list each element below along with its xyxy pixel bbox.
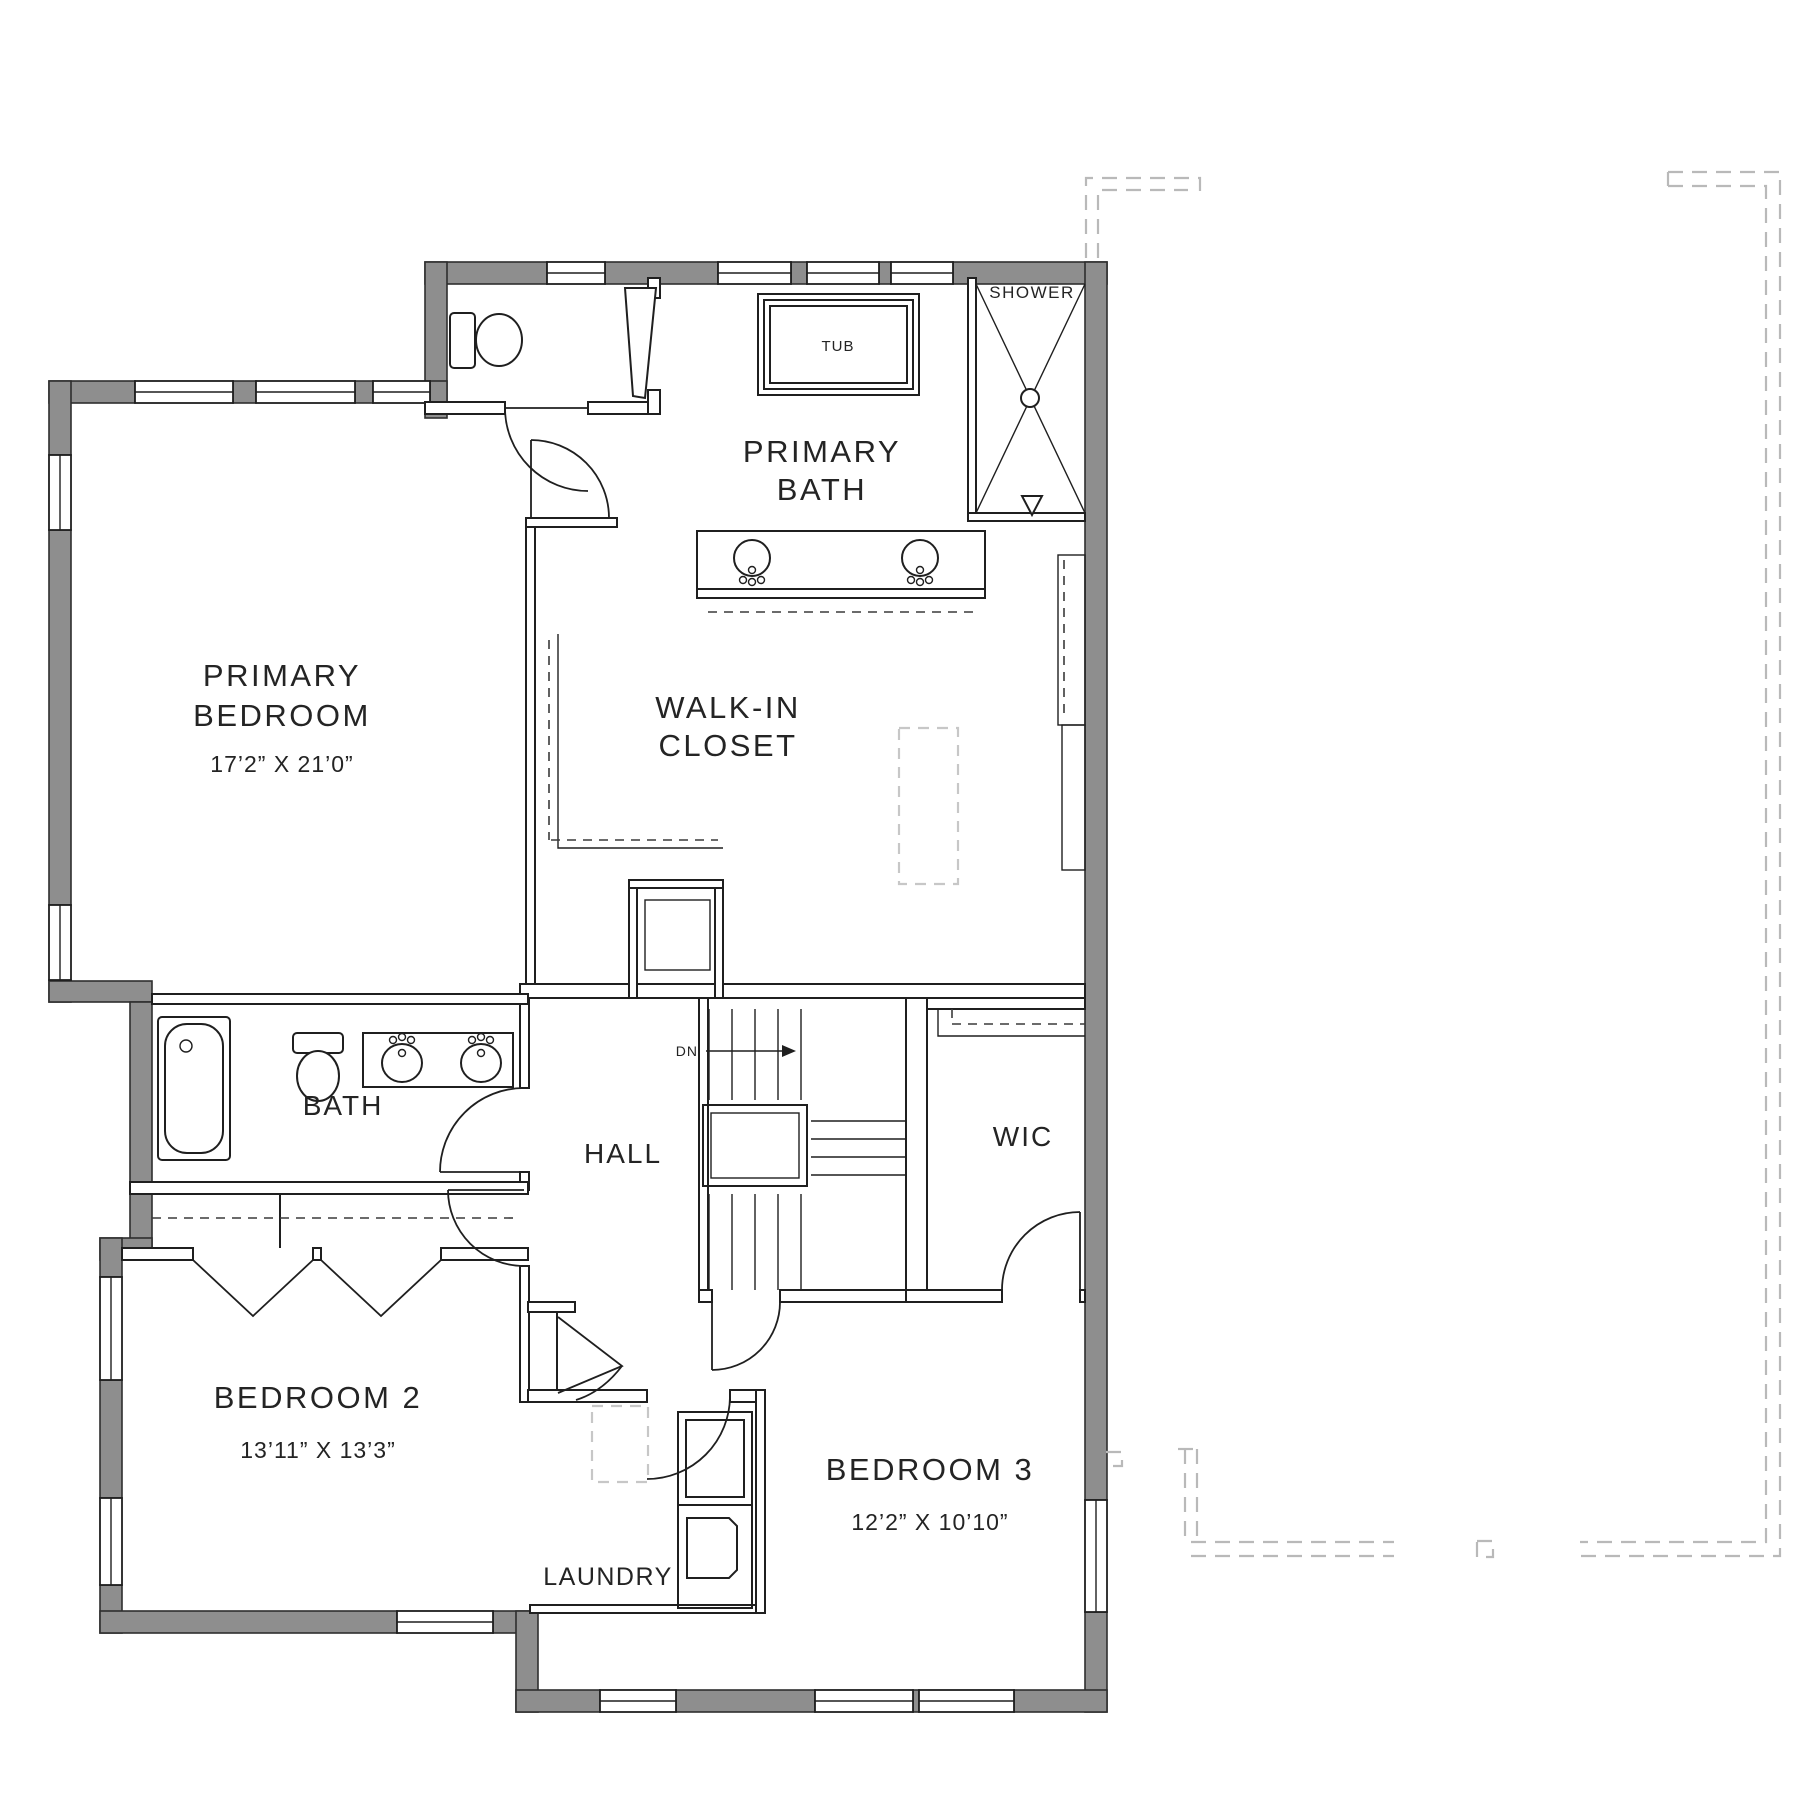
bath-door	[440, 1088, 524, 1172]
laundry-door	[647, 1396, 730, 1479]
wic-vestibule-door	[531, 440, 609, 518]
window	[547, 262, 605, 284]
primary-bedroom-label-line1: PRIMARY	[203, 658, 361, 693]
window	[891, 262, 953, 284]
shower-pan	[976, 284, 1085, 515]
window	[815, 1690, 913, 1712]
primary-bath-door	[625, 288, 656, 398]
window	[397, 1611, 493, 1633]
window	[600, 1690, 676, 1712]
window	[100, 1498, 122, 1585]
window	[919, 1690, 1014, 1712]
down-arrow	[706, 1045, 796, 1057]
double-vanity	[697, 531, 985, 589]
bedroom3-door	[712, 1302, 780, 1370]
bedroom3-dims: 12’2” X 10’10”	[851, 1509, 1008, 1535]
window	[49, 905, 71, 980]
window	[718, 262, 791, 284]
wic-label: WIC	[993, 1121, 1053, 1152]
window	[1085, 1500, 1107, 1612]
wic-room-shelving	[938, 1009, 1085, 1036]
bathtub-2	[158, 1017, 230, 1160]
staircase	[703, 1009, 906, 1290]
linen-closet-door	[558, 1317, 622, 1400]
primary-bath-label-line2: BATH	[777, 472, 867, 507]
bedroom3-label: BEDROOM 3	[826, 1452, 1035, 1487]
primary-bedroom-label-line2: BEDROOM	[193, 698, 371, 733]
walk-in-closet-label-line2: CLOSET	[658, 728, 797, 763]
laundry-label: LAUNDRY	[543, 1563, 673, 1591]
hall-label: HALL	[584, 1138, 662, 1169]
adjacent-unit-outline	[1086, 172, 1780, 1557]
stairs-dn-label: DN	[676, 1043, 698, 1059]
bath-label: BATH	[303, 1090, 384, 1121]
wic-door	[1002, 1212, 1080, 1290]
wic-shelving	[549, 555, 1085, 884]
vanity-2	[363, 1033, 513, 1087]
floor-plan-drawing: PRIMARY BEDROOM 17’2” X 21’0” PRIMARY BA…	[0, 0, 1800, 1800]
floor-plan-page: PRIMARY BEDROOM 17’2” X 21’0” PRIMARY BA…	[0, 0, 1800, 1800]
primary-bedroom-dims: 17’2” X 21’0”	[210, 751, 353, 777]
closet-island	[899, 728, 958, 884]
window	[807, 262, 879, 284]
toilet	[450, 313, 522, 368]
walk-in-closet-label-line1: WALK-IN	[655, 690, 801, 725]
bedroom2-label: BEDROOM 2	[214, 1380, 423, 1415]
window	[49, 455, 71, 530]
bedroom2-closet-bifold-doors	[193, 1260, 441, 1316]
bedroom2-dims: 13’11” X 13’3”	[240, 1437, 396, 1463]
window	[135, 381, 233, 403]
primary-bath-label-line1: PRIMARY	[743, 434, 901, 469]
shower-label: SHOWER	[989, 283, 1075, 302]
window	[100, 1277, 122, 1380]
window	[373, 381, 430, 403]
suite-entry-door	[505, 408, 588, 491]
tub-label: TUB	[822, 338, 855, 355]
window	[256, 381, 355, 403]
